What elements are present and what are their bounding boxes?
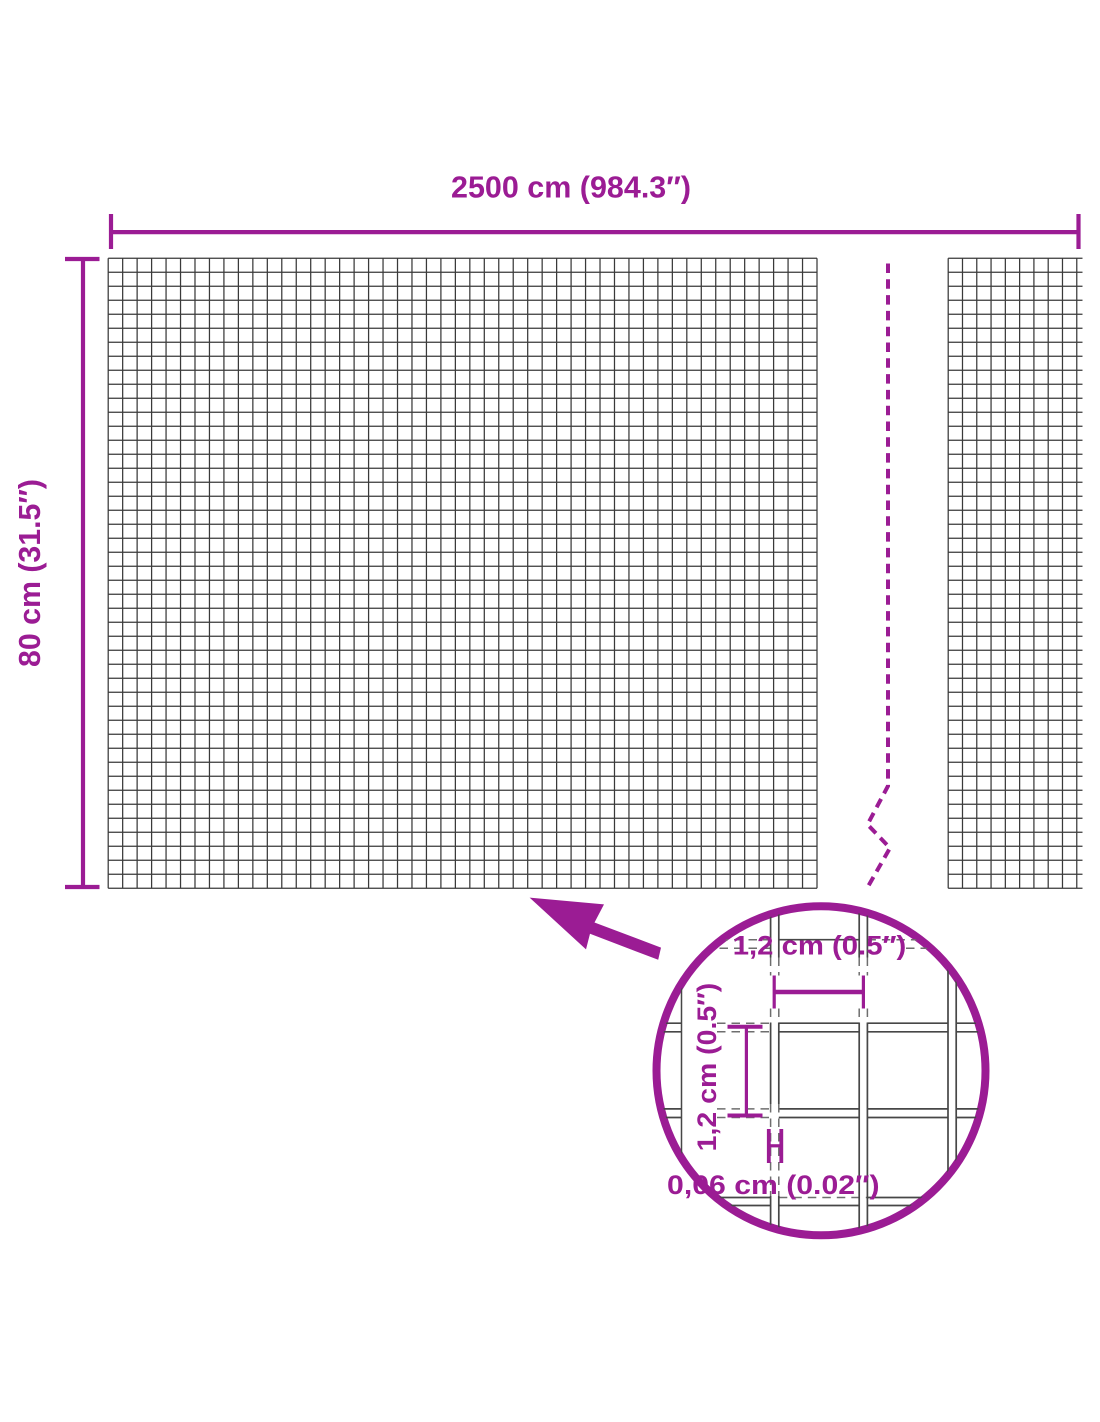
svg-text:1,2 cm (0.5″): 1,2 cm (0.5″) [692, 983, 722, 1152]
svg-text:1,2 cm (0.5″): 1,2 cm (0.5″) [733, 931, 907, 961]
svg-text:0,06 cm (0.02″): 0,06 cm (0.02″) [667, 1170, 880, 1200]
svg-text:2500 cm (984.3″): 2500 cm (984.3″) [451, 170, 691, 205]
svg-text:80 cm (31.5″): 80 cm (31.5″) [12, 479, 47, 667]
